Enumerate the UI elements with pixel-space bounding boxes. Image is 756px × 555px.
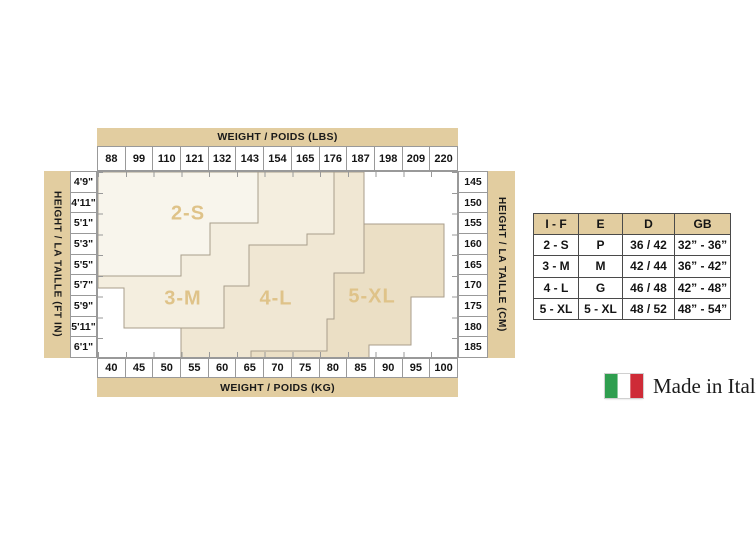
weight-lbs-tick: 132 xyxy=(209,147,237,170)
height-ftin-tick: 5'9" xyxy=(71,296,96,317)
weight-lbs-tick: 121 xyxy=(181,147,209,170)
flag-stripe-green xyxy=(605,374,618,398)
weight-lbs-tick: 110 xyxy=(153,147,181,170)
weight-kg-header-bar: WEIGHT / POIDS (KG) xyxy=(97,378,458,397)
weight-lbs-tick: 143 xyxy=(236,147,264,170)
table-cell: 2 - S xyxy=(534,235,579,256)
size-zones-plot xyxy=(98,172,457,357)
height-ftin-tick: 5'7" xyxy=(71,275,96,296)
table-cell: 46 / 48 xyxy=(623,277,675,298)
table-cell: 4 - L xyxy=(534,277,579,298)
height-cm-tick: 155 xyxy=(459,213,487,234)
table-header-e: E xyxy=(579,214,623,235)
weight-lbs-tick: 88 xyxy=(98,147,126,170)
table-header-row: I - F E D GB xyxy=(534,214,731,235)
weight-kg-tick: 95 xyxy=(403,359,431,377)
italy-flag-icon xyxy=(605,374,643,398)
height-ftin-tick: 4'9" xyxy=(71,172,96,193)
table-cell: 42 / 44 xyxy=(623,256,675,277)
weight-lbs-scale: 88 99 110 121 132 143 154 165 176 187 19… xyxy=(97,146,458,171)
table-cell: 3 - M xyxy=(534,256,579,277)
height-ftin-axis-band: HEIGHT / LA TAILLE (FT IN) xyxy=(44,171,70,358)
height-ftin-tick: 4'11" xyxy=(71,193,96,214)
weight-kg-tick: 90 xyxy=(375,359,403,377)
weight-kg-tick: 40 xyxy=(98,359,126,377)
table-cell: M xyxy=(579,256,623,277)
height-cm-tick: 170 xyxy=(459,275,487,296)
row-ticks-right xyxy=(452,172,457,357)
made-in-italy-text: Made in Italy xyxy=(653,374,756,398)
zone-label-3m: 3-M xyxy=(164,288,201,311)
weight-lbs-header-label: WEIGHT / POIDS (LBS) xyxy=(217,131,337,143)
weight-lbs-tick: 220 xyxy=(430,147,457,170)
weight-lbs-header-bar: WEIGHT / POIDS (LBS) xyxy=(97,128,458,146)
column-ticks-bottom xyxy=(98,352,457,357)
weight-kg-header-label: WEIGHT / POIDS (KG) xyxy=(220,382,335,394)
weight-lbs-tick: 165 xyxy=(292,147,320,170)
height-ftin-tick: 5'11" xyxy=(71,317,96,338)
height-cm-tick: 145 xyxy=(459,172,487,193)
table-cell: 36” - 42” xyxy=(675,256,731,277)
table-cell: 5 - XL xyxy=(579,298,623,319)
height-cm-tick: 160 xyxy=(459,234,487,255)
height-cm-tick: 150 xyxy=(459,193,487,214)
table-row: 3 - M M 42 / 44 36” - 42” xyxy=(534,256,731,277)
table-cell: 48 / 52 xyxy=(623,298,675,319)
table-cell: G xyxy=(579,277,623,298)
weight-kg-tick: 60 xyxy=(209,359,237,377)
height-cm-scale: 145 150 155 160 165 170 175 180 185 xyxy=(458,171,488,358)
size-zone-grid xyxy=(97,171,458,358)
weight-lbs-tick: 187 xyxy=(347,147,375,170)
flag-stripe-red xyxy=(630,374,643,398)
height-ftin-tick: 6'1" xyxy=(71,337,96,357)
zone-label-2s: 2-S xyxy=(171,203,205,226)
height-cm-tick: 175 xyxy=(459,296,487,317)
column-ticks-top xyxy=(98,172,457,177)
table-row: 4 - L G 46 / 48 42” - 48” xyxy=(534,277,731,298)
height-cm-axis-band: HEIGHT / LA TAILLE (CM) xyxy=(488,171,515,358)
weight-lbs-tick: 198 xyxy=(375,147,403,170)
weight-kg-tick: 75 xyxy=(292,359,320,377)
weight-kg-tick: 65 xyxy=(236,359,264,377)
weight-lbs-tick: 209 xyxy=(403,147,431,170)
table-row: 5 - XL 5 - XL 48 / 52 48” - 54” xyxy=(534,298,731,319)
table-header-if: I - F xyxy=(534,214,579,235)
height-ftin-tick: 5'5" xyxy=(71,255,96,276)
weight-kg-tick: 70 xyxy=(264,359,292,377)
weight-kg-tick: 50 xyxy=(153,359,181,377)
weight-kg-scale: 40 45 50 55 60 65 70 75 80 85 90 95 100 xyxy=(97,358,458,378)
flag-stripe-white xyxy=(618,374,631,398)
table-cell: 42” - 48” xyxy=(675,277,731,298)
weight-lbs-tick: 99 xyxy=(126,147,154,170)
zone-label-5xl: 5-XL xyxy=(348,286,395,309)
weight-kg-tick: 85 xyxy=(347,359,375,377)
height-cm-tick: 165 xyxy=(459,255,487,276)
table-cell: 5 - XL xyxy=(534,298,579,319)
weight-kg-tick: 100 xyxy=(430,359,457,377)
height-cm-tick: 185 xyxy=(459,337,487,357)
table-row: 2 - S P 36 / 42 32” - 36” xyxy=(534,235,731,256)
table-cell: 36 / 42 xyxy=(623,235,675,256)
weight-kg-tick: 55 xyxy=(181,359,209,377)
weight-kg-tick: 80 xyxy=(320,359,348,377)
size-conversion-table: I - F E D GB 2 - S P 36 / 42 32” - 36” 3… xyxy=(533,213,731,320)
table-header-gb: GB xyxy=(675,214,731,235)
height-ftin-scale: 4'9" 4'11" 5'1" 5'3" 5'5" 5'7" 5'9" 5'11… xyxy=(70,171,97,358)
zone-label-4l: 4-L xyxy=(260,288,293,311)
table-cell: 32” - 36” xyxy=(675,235,731,256)
table-cell: P xyxy=(579,235,623,256)
row-ticks-left xyxy=(98,172,103,357)
height-ftin-tick: 5'3" xyxy=(71,234,96,255)
table-cell: 48” - 54” xyxy=(675,298,731,319)
height-ftin-tick: 5'1" xyxy=(71,213,96,234)
weight-lbs-tick: 154 xyxy=(264,147,292,170)
weight-kg-tick: 45 xyxy=(126,359,154,377)
table-header-d: D xyxy=(623,214,675,235)
height-ftin-axis-label: HEIGHT / LA TAILLE (FT IN) xyxy=(52,191,63,337)
weight-lbs-tick: 176 xyxy=(320,147,348,170)
height-cm-tick: 180 xyxy=(459,317,487,338)
height-cm-axis-label: HEIGHT / LA TAILLE (CM) xyxy=(496,197,507,332)
